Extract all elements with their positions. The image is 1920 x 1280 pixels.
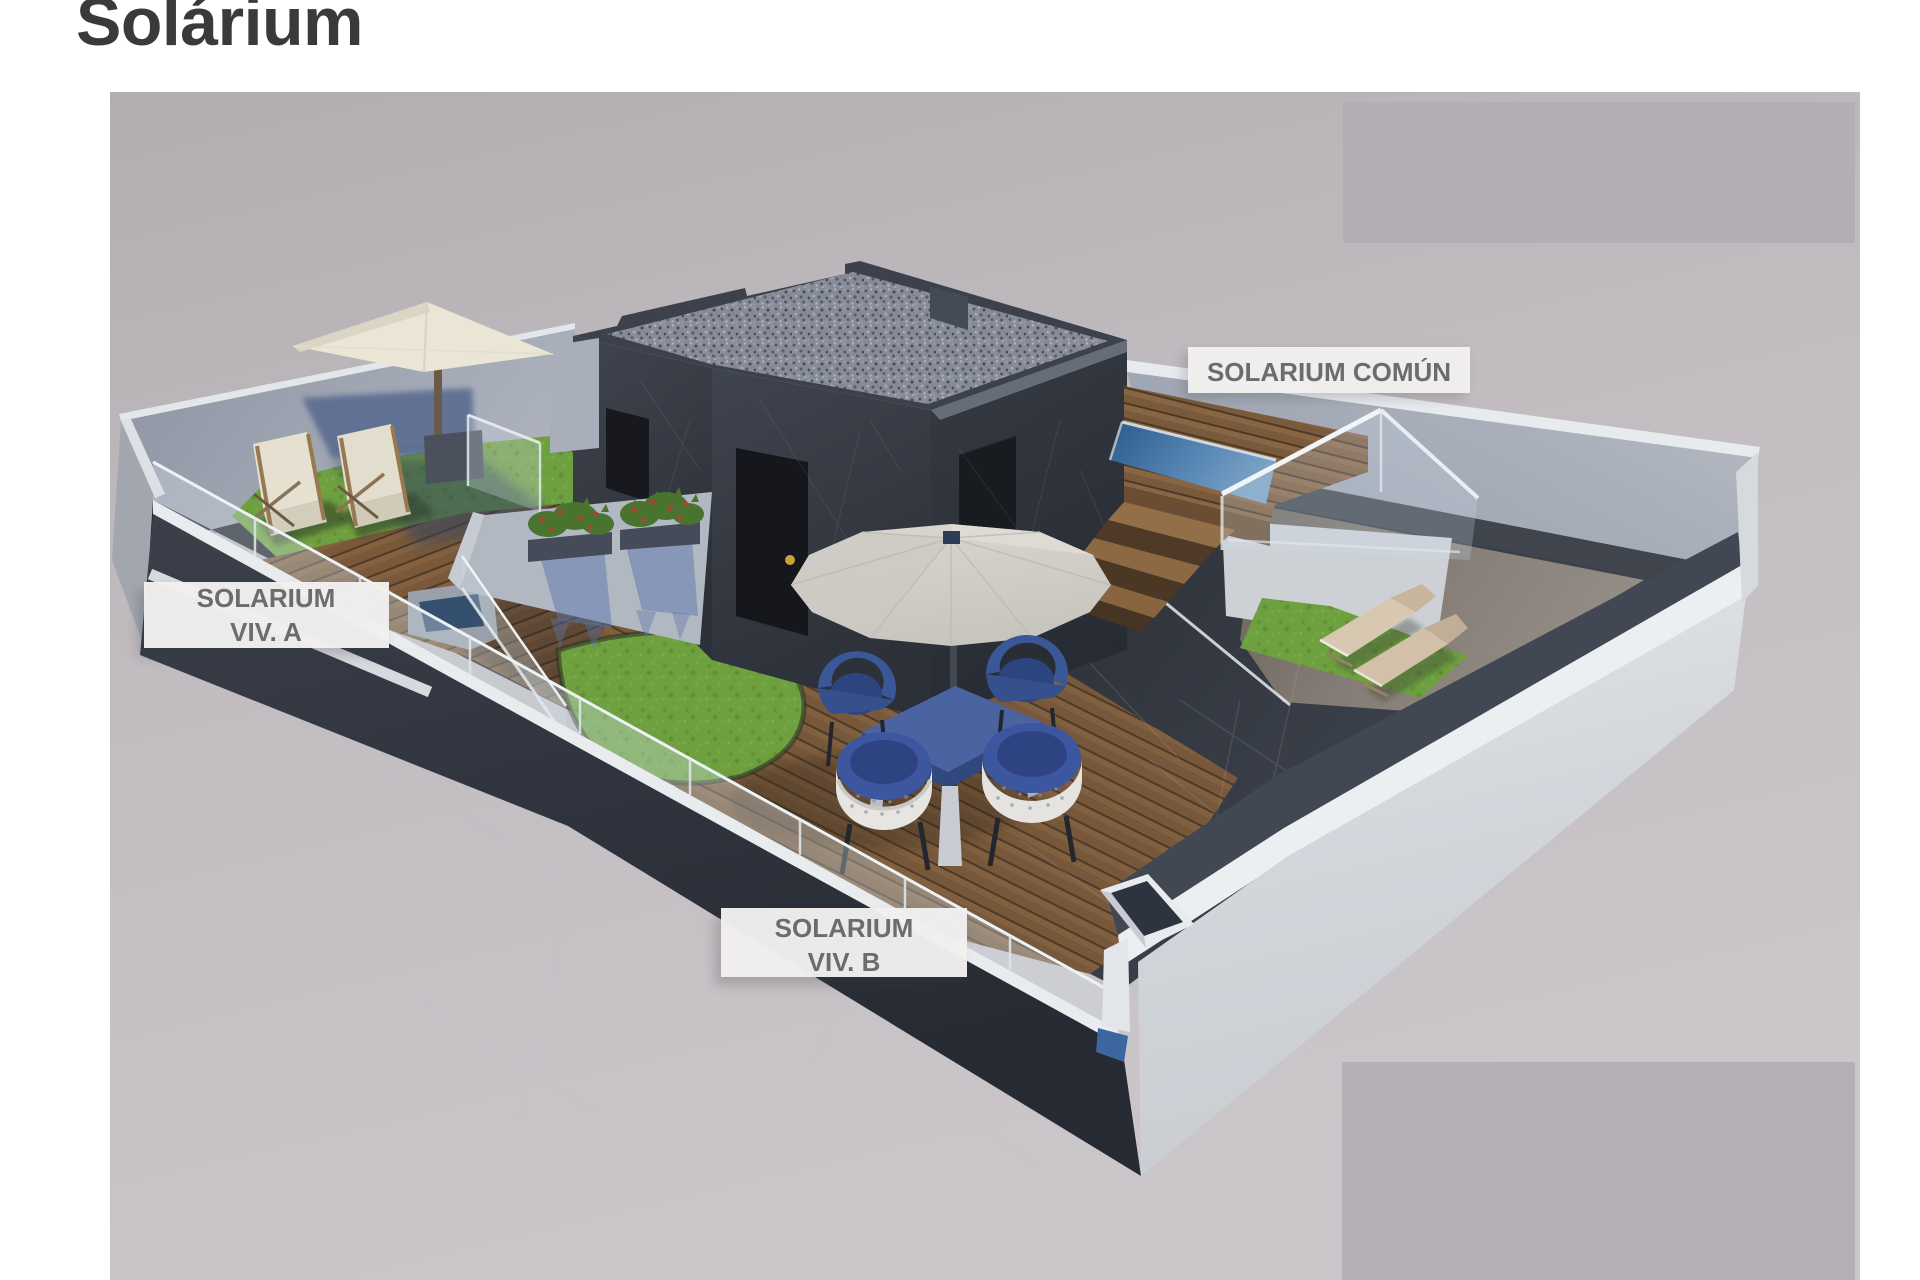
svg-text:SOLARIUM COMÚN: SOLARIUM COMÚN <box>1207 357 1451 387</box>
svg-text:VIV. B: VIV. B <box>808 947 881 977</box>
svg-text:SOLARIUM: SOLARIUM <box>197 583 336 613</box>
svg-text:SOLARIUM: SOLARIUM <box>775 913 914 943</box>
svg-text:VIV. A: VIV. A <box>230 617 302 647</box>
